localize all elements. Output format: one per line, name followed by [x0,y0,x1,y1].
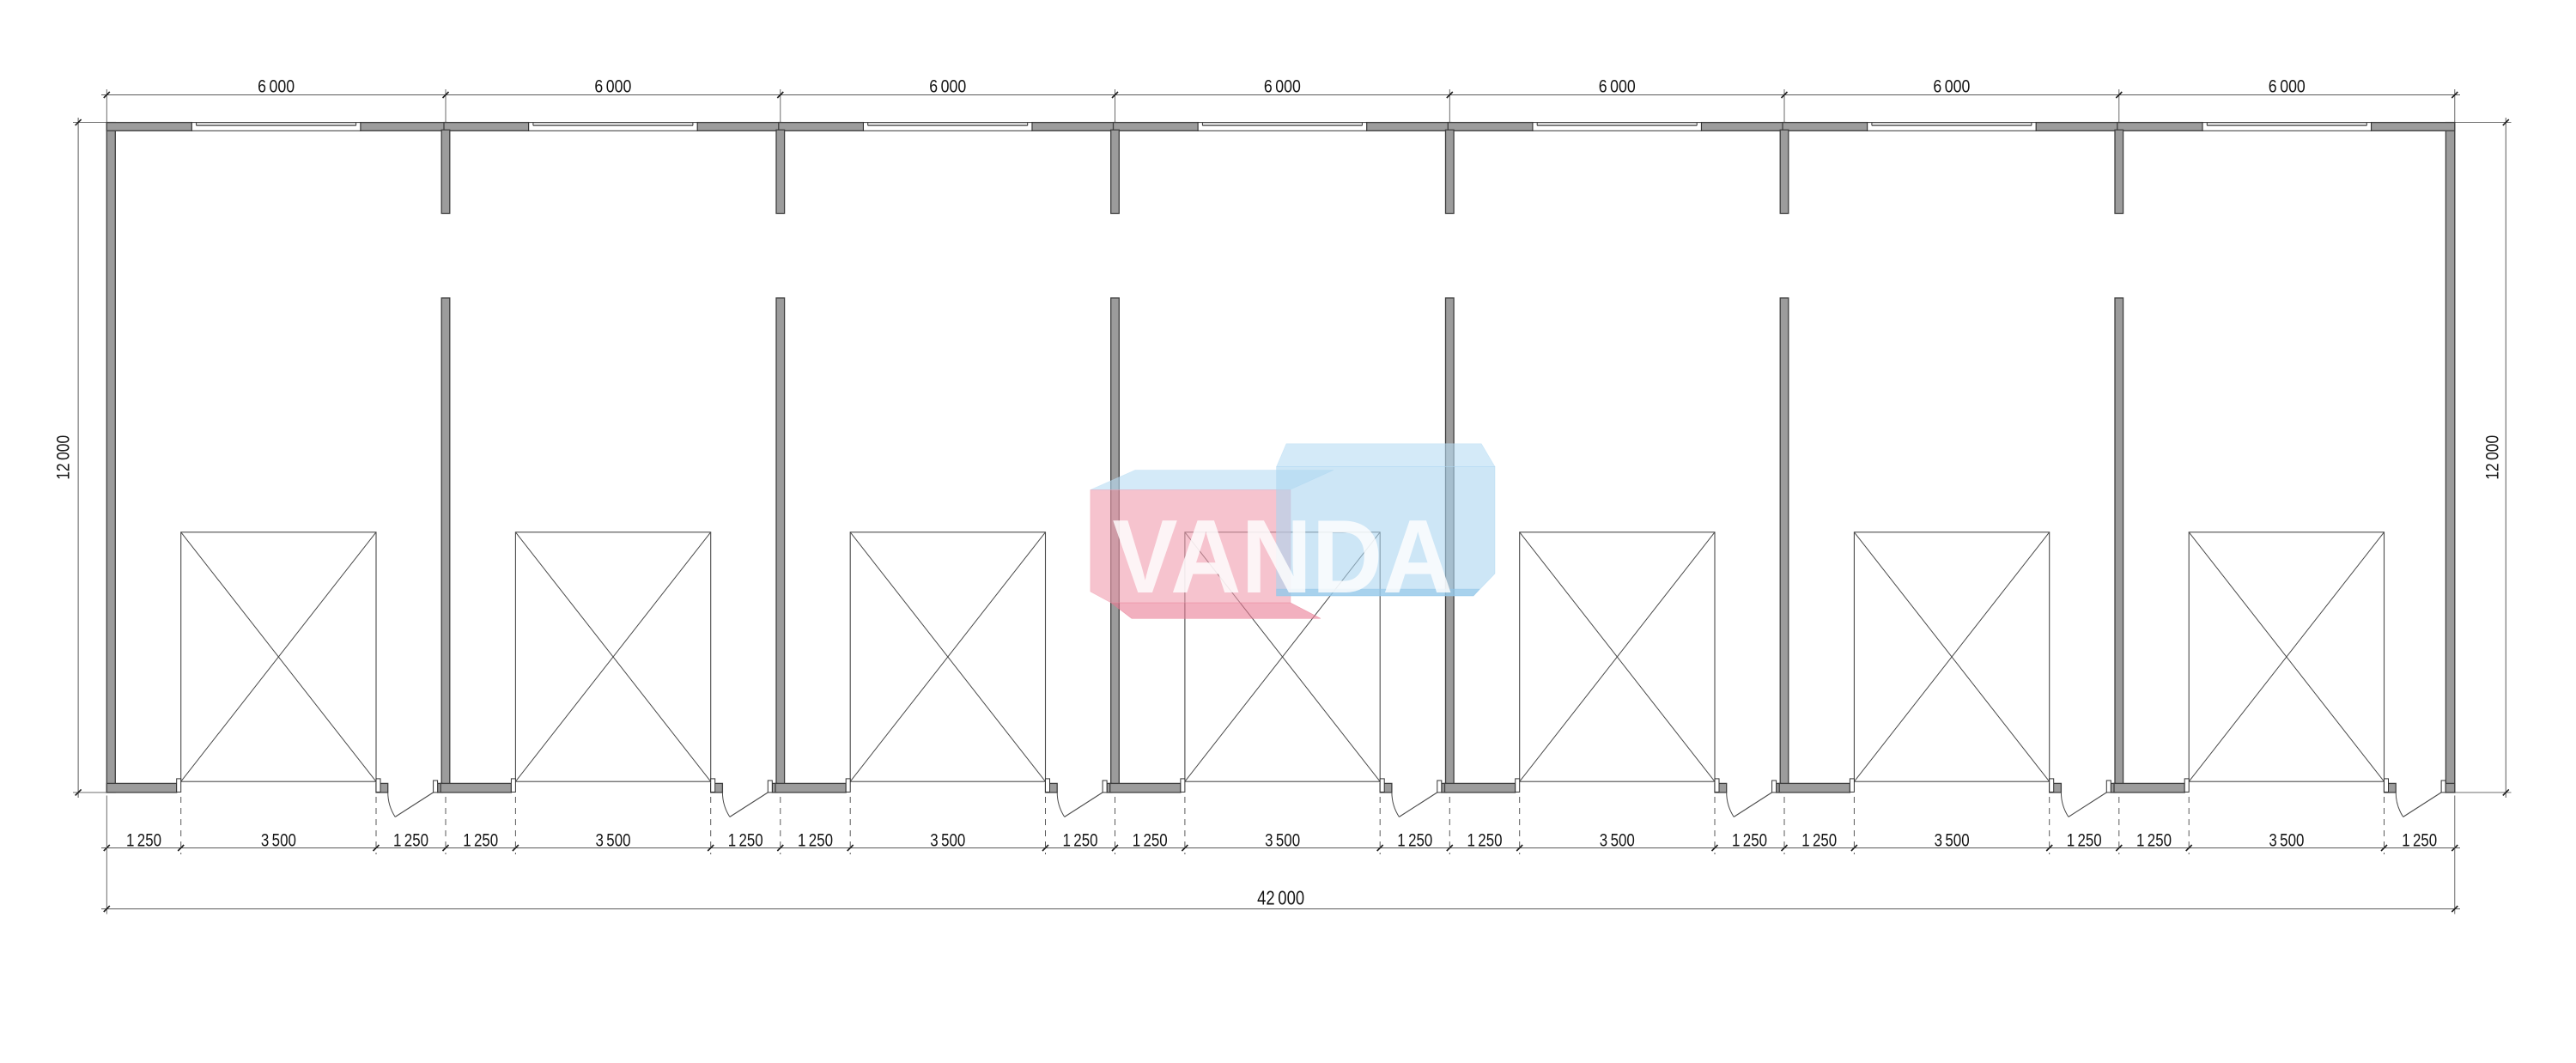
svg-text:42 000: 42 000 [1257,887,1304,909]
svg-text:1 250: 1 250 [1801,831,1837,851]
svg-text:1 250: 1 250 [2402,831,2437,851]
svg-text:1 250: 1 250 [1397,831,1432,851]
svg-text:1 250: 1 250 [393,831,428,851]
svg-text:1 250: 1 250 [1467,831,1503,851]
svg-text:1 250: 1 250 [126,831,161,851]
svg-text:3 500: 3 500 [596,831,631,851]
svg-text:1 250: 1 250 [798,831,833,851]
svg-text:1 250: 1 250 [728,831,763,851]
svg-text:1 250: 1 250 [1732,831,1767,851]
svg-text:3 500: 3 500 [1935,831,1970,851]
svg-text:1 250: 1 250 [463,831,498,851]
svg-text:1 250: 1 250 [1063,831,1098,851]
svg-text:6 000: 6 000 [2269,77,2306,97]
svg-text:6 000: 6 000 [1599,77,1636,97]
svg-text:3 500: 3 500 [930,831,965,851]
svg-text:6 000: 6 000 [1933,77,1970,97]
svg-text:3 500: 3 500 [1600,831,1635,851]
svg-text:6 000: 6 000 [1264,77,1301,97]
svg-text:6 000: 6 000 [929,77,966,97]
svg-text:12 000: 12 000 [2483,435,2503,480]
svg-text:6 000: 6 000 [258,77,295,97]
svg-text:3 500: 3 500 [2269,831,2304,851]
svg-text:3 500: 3 500 [1265,831,1300,851]
svg-text:1 250: 1 250 [1133,831,1168,851]
svg-text:3 500: 3 500 [261,831,296,851]
svg-text:VANDA: VANDA [1113,498,1454,615]
svg-text:1 250: 1 250 [2136,831,2172,851]
svg-text:12 000: 12 000 [54,435,74,480]
svg-text:1 250: 1 250 [2067,831,2102,851]
svg-text:6 000: 6 000 [594,77,631,97]
